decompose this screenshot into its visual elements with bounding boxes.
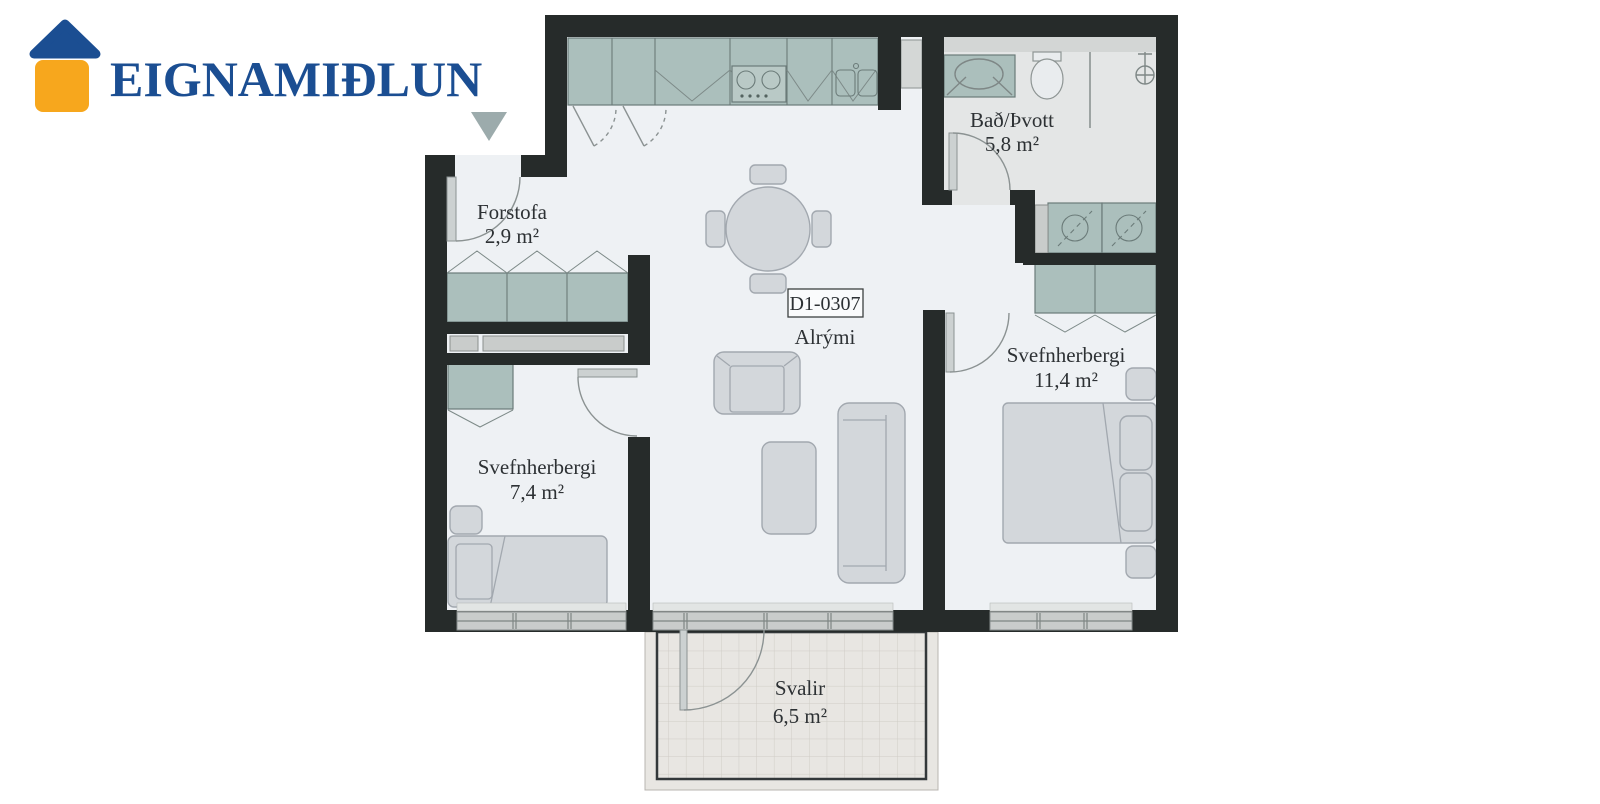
- washer-dryer: [1035, 203, 1156, 253]
- sofa: [838, 403, 905, 583]
- room-label-bad: Bað/Þvott: [970, 108, 1054, 132]
- room-label-svalir: Svalir: [775, 676, 825, 700]
- floorplan-page: EIGNAMIÐLUN: [0, 0, 1600, 804]
- room-area-svalir: 6,5 m²: [773, 704, 827, 728]
- room-area-svefn2: 11,4 m²: [1034, 368, 1098, 392]
- room-label-svefn1: Svefnherbergi: [478, 455, 597, 479]
- windows: [457, 603, 1132, 630]
- floor-plan: Forstofa 2,9 m² Bað/Þvott 5,8 m² D1-0307…: [0, 0, 1600, 804]
- bedroom1-window: [457, 603, 626, 630]
- unit-label: D1-0307: [789, 293, 860, 315]
- room-label-svefn2: Svefnherbergi: [1007, 343, 1126, 367]
- room-label-alrymi: Alrými: [795, 325, 856, 349]
- coffee-table: [762, 442, 816, 534]
- armchair: [714, 352, 800, 414]
- bedroom2-window: [990, 603, 1132, 630]
- room-area-bad: 5,8 m²: [985, 132, 1039, 156]
- entrance-arrow-down-icon: [471, 112, 507, 141]
- shelf-niche: [450, 336, 624, 351]
- fridge: [901, 40, 922, 88]
- room-label-forstofa: Forstofa: [477, 200, 548, 224]
- room-area-svefn1: 7,4 m²: [510, 480, 564, 504]
- toilet: [1031, 52, 1063, 99]
- room-area-forstofa: 2,9 m²: [485, 224, 539, 248]
- living-window: [653, 603, 893, 630]
- bathroom-vanity: [944, 55, 1015, 97]
- stove: [732, 66, 786, 102]
